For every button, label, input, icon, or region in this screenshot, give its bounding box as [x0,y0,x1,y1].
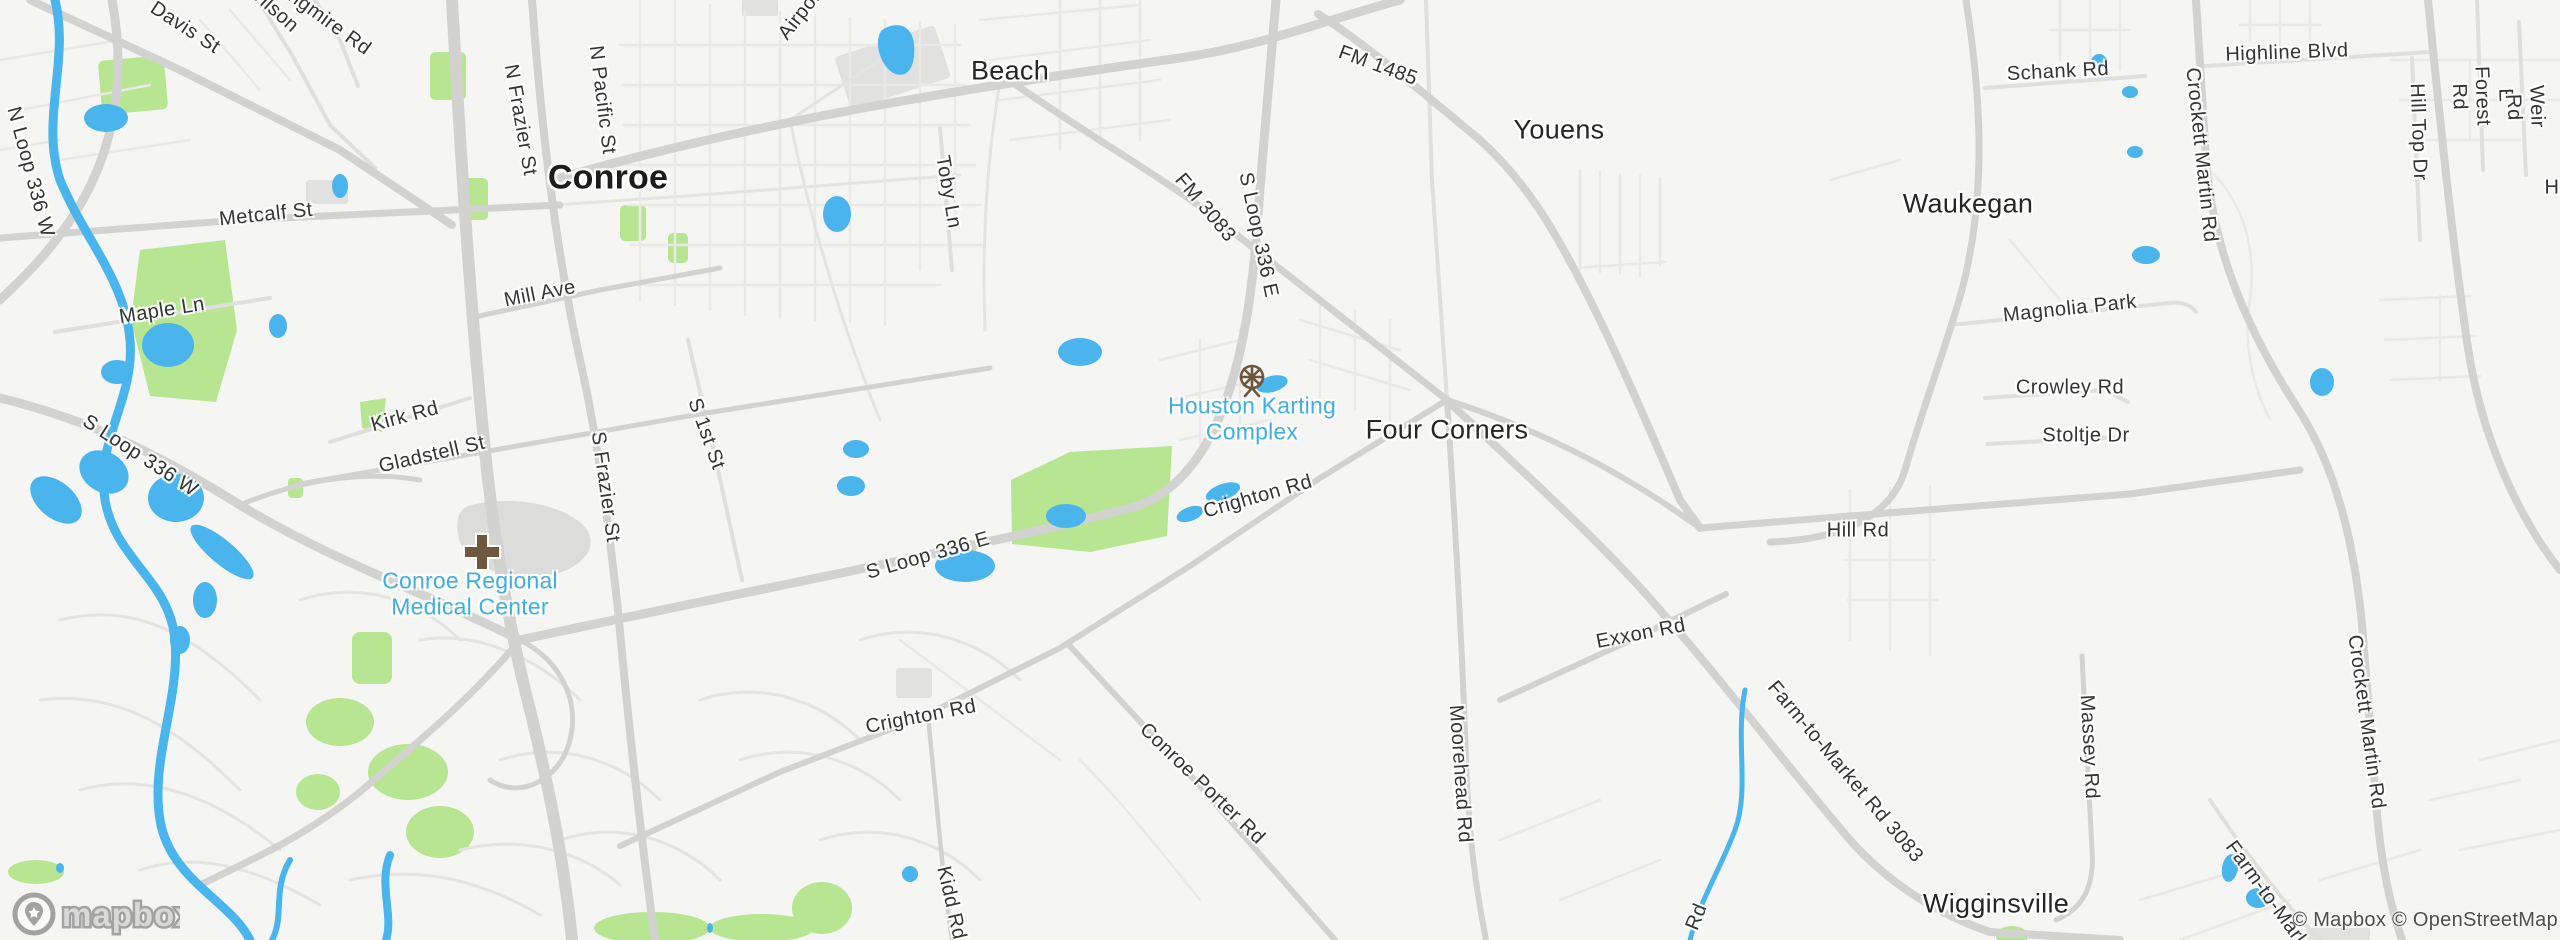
mapbox-pin-icon [15,895,53,933]
basemap [0,0,2560,940]
attribution[interactable]: © Mapbox © OpenStreetMap [2292,909,2558,932]
medium-roads [55,0,2526,940]
map-canvas[interactable]: ConroeBeachYouensWaukeganFour CornersWig… [0,0,2560,940]
mapbox-logo[interactable]: mapbox [10,890,180,938]
mapbox-logo-text: mapbox [62,896,180,933]
major-roads [0,0,2560,940]
